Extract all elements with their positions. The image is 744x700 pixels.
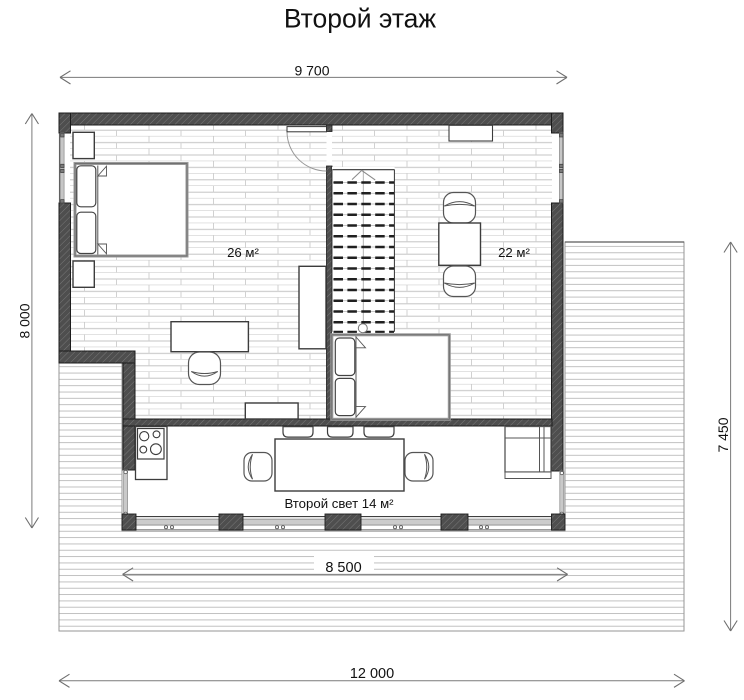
svg-text:Второй этаж: Второй этаж — [284, 4, 437, 34]
svg-text:12 000: 12 000 — [350, 666, 394, 682]
svg-text:Второй свет 14 м²: Второй свет 14 м² — [284, 496, 394, 511]
svg-text:9 700: 9 700 — [294, 62, 329, 78]
svg-text:8 500: 8 500 — [325, 560, 361, 576]
svg-text:8 000: 8 000 — [16, 303, 32, 338]
svg-text:22 м²: 22 м² — [498, 245, 530, 260]
svg-text:26 м²: 26 м² — [227, 245, 259, 260]
svg-text:7 450: 7 450 — [715, 417, 731, 452]
